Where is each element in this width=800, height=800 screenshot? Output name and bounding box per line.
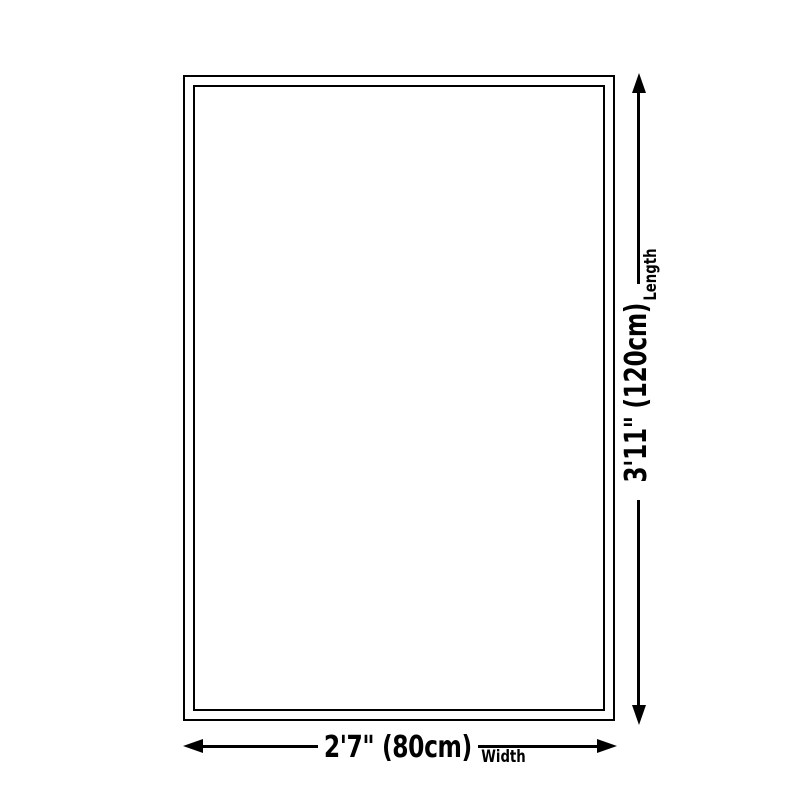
right-arrowhead-icon	[597, 739, 617, 753]
length-axis-text: Length	[641, 249, 661, 301]
left-arrowhead-icon	[183, 739, 203, 753]
width-axis-text: Width	[481, 747, 525, 767]
length-line-bottom	[637, 500, 640, 706]
length-dimension-text: 3'11" (120cm)	[621, 303, 653, 483]
width-dimension-text: 2'7" (80cm)	[324, 732, 472, 764]
dimension-diagram: 3'11" (120cm) Length 2'7" (80cm) Width	[0, 0, 800, 800]
width-axis-label: Width	[463, 747, 543, 767]
length-dimension-label: 3'11" (120cm)	[621, 288, 653, 508]
item-inner-border	[193, 85, 605, 711]
down-arrowhead-icon	[632, 705, 646, 725]
length-axis-label: Length	[641, 235, 661, 315]
length-line-top	[637, 92, 640, 284]
item-outer-border	[183, 75, 615, 721]
up-arrowhead-icon	[632, 73, 646, 93]
